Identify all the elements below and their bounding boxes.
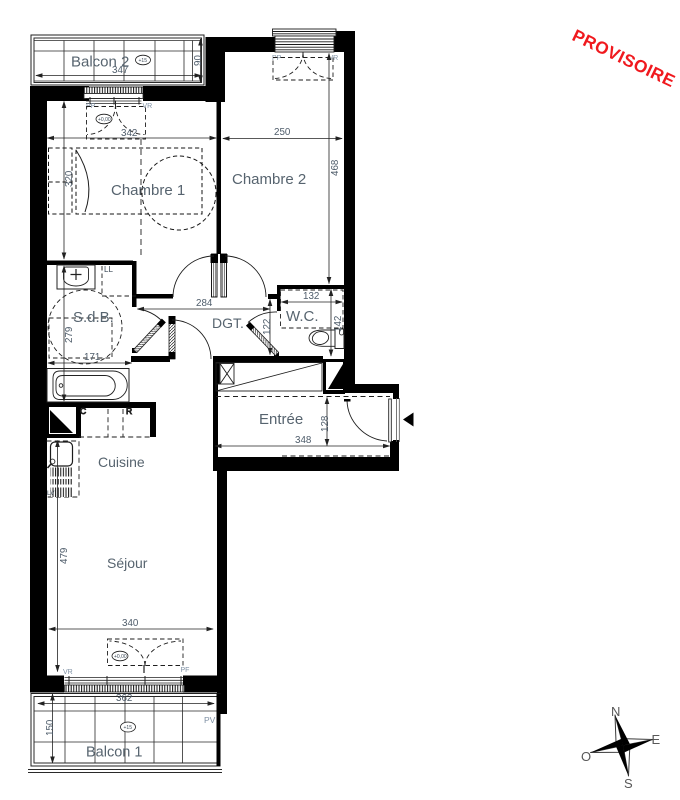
svg-text:N: N <box>611 704 620 719</box>
svg-text:O: O <box>581 749 591 764</box>
svg-text:132: 132 <box>303 291 319 302</box>
svg-text:320: 320 <box>64 170 75 187</box>
svg-text:90: 90 <box>193 55 204 66</box>
svg-text:128: 128 <box>320 415 331 432</box>
svg-text:S: S <box>624 776 633 791</box>
svg-text:142: 142 <box>333 316 344 332</box>
svg-text:LV: LV <box>47 490 55 497</box>
svg-text:284: 284 <box>196 298 213 309</box>
svg-text:VR: VR <box>143 103 153 110</box>
svg-text:347: 347 <box>112 65 128 76</box>
svg-text:468: 468 <box>330 159 341 176</box>
svg-text:362: 362 <box>116 693 132 704</box>
svg-text:Balcon 1: Balcon 1 <box>86 745 142 761</box>
svg-text:340: 340 <box>122 618 139 629</box>
svg-text:Entrée: Entrée <box>259 411 303 428</box>
svg-text:LL: LL <box>104 265 113 274</box>
svg-text:VR: VR <box>63 669 73 676</box>
svg-text:+0,00: +0,00 <box>114 654 127 660</box>
svg-text:279: 279 <box>64 327 75 343</box>
svg-text:PP: PP <box>272 55 282 62</box>
svg-text:+15: +15 <box>124 725 133 731</box>
svg-text:479: 479 <box>59 548 70 564</box>
svg-text:122: 122 <box>262 319 273 335</box>
svg-text:W.C.: W.C. <box>286 308 319 325</box>
svg-text:C: C <box>80 406 86 416</box>
svg-text:DGT.: DGT. <box>212 315 244 331</box>
svg-text:Chambre 2: Chambre 2 <box>232 171 306 188</box>
svg-text:348: 348 <box>295 435 312 446</box>
svg-text:R: R <box>126 406 132 416</box>
svg-text:E: E <box>652 732 661 747</box>
svg-text:S.d.B.: S.d.B. <box>73 309 114 326</box>
svg-text:Séjour: Séjour <box>107 555 148 571</box>
svg-text:PF: PF <box>181 667 190 674</box>
svg-text:+15: +15 <box>139 58 148 64</box>
svg-text:Chambre 1: Chambre 1 <box>111 182 185 199</box>
svg-text:PV: PV <box>204 715 216 725</box>
svg-text:150: 150 <box>45 719 56 736</box>
svg-text:Cuisine: Cuisine <box>98 454 145 470</box>
svg-text:+0,00: +0,00 <box>98 117 111 123</box>
svg-text:342: 342 <box>121 128 137 139</box>
svg-text:250: 250 <box>274 127 291 138</box>
svg-text:171: 171 <box>84 352 100 363</box>
